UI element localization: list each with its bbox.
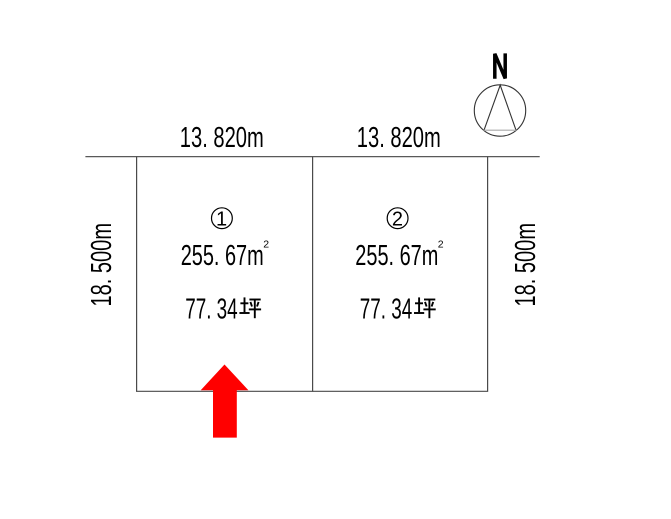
svg-text:13. 820m: 13. 820m <box>180 122 264 154</box>
svg-text:18. 500m: 18. 500m <box>86 223 118 307</box>
svg-text:2: 2 <box>263 239 269 251</box>
svg-text:1: 1 <box>216 208 227 230</box>
svg-text:2: 2 <box>392 208 403 230</box>
svg-text:18. 500m: 18. 500m <box>510 223 542 307</box>
svg-text:255. 67m: 255. 67m <box>355 240 438 272</box>
svg-text:2: 2 <box>438 239 444 251</box>
svg-text:255. 67m: 255. 67m <box>181 240 264 272</box>
svg-text:13. 820m: 13. 820m <box>357 122 441 154</box>
svg-text:77. 34: 77. 34 <box>360 294 413 326</box>
svg-text:77. 34: 77. 34 <box>185 294 238 326</box>
